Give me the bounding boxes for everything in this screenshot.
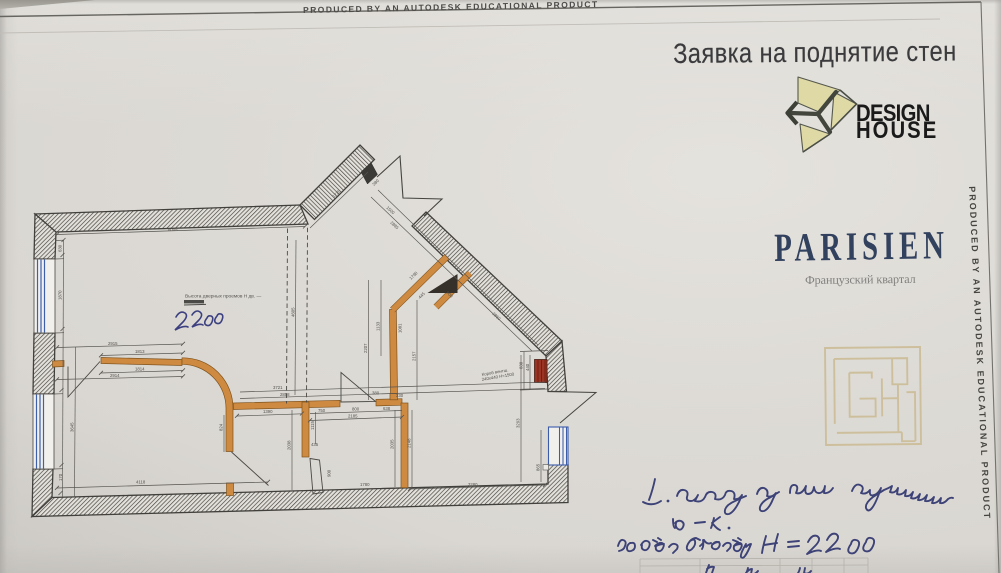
svg-text:1390: 1390 xyxy=(263,409,273,414)
svg-text:170: 170 xyxy=(58,473,63,481)
svg-text:1081: 1081 xyxy=(398,323,403,333)
svg-text:4605: 4605 xyxy=(291,307,296,317)
svg-text:3280: 3280 xyxy=(468,482,478,487)
svg-text:2915: 2915 xyxy=(108,341,118,346)
svg-text:2858: 2858 xyxy=(280,392,290,397)
svg-text:440: 440 xyxy=(525,363,530,371)
svg-text:2035: 2035 xyxy=(390,439,395,449)
svg-text:800: 800 xyxy=(352,407,360,412)
svg-text:445: 445 xyxy=(417,291,426,300)
svg-text:1115: 1115 xyxy=(310,420,315,430)
svg-text:3645: 3645 xyxy=(70,422,75,432)
svg-text:630: 630 xyxy=(58,244,63,252)
svg-text:1133: 1133 xyxy=(376,321,381,331)
svg-text:Высота дверных проемов Н дв. —: Высота дверных проемов Н дв. — xyxy=(185,294,262,300)
svg-text:1790: 1790 xyxy=(408,270,419,281)
svg-text:2185: 2185 xyxy=(348,413,358,418)
svg-text:865: 865 xyxy=(536,463,541,471)
svg-text:2885: 2885 xyxy=(389,220,400,231)
svg-text:3293: 3293 xyxy=(516,418,521,428)
svg-text:900: 900 xyxy=(327,469,332,477)
svg-text:824: 824 xyxy=(219,423,224,431)
svg-text:380: 380 xyxy=(372,391,380,396)
svg-text:750: 750 xyxy=(318,408,326,413)
svg-text:2914: 2914 xyxy=(110,373,120,378)
svg-text:230: 230 xyxy=(396,393,404,398)
svg-text:2207: 2207 xyxy=(363,343,368,353)
svg-text:2157: 2157 xyxy=(412,351,417,361)
svg-text:830: 830 xyxy=(519,361,524,369)
svg-text:3721: 3721 xyxy=(273,385,283,390)
svg-text:1870: 1870 xyxy=(58,290,63,300)
svg-text:638: 638 xyxy=(383,406,391,411)
svg-text:2038: 2038 xyxy=(287,440,292,450)
svg-text:2148: 2148 xyxy=(407,438,412,448)
svg-text:4118: 4118 xyxy=(136,480,146,485)
svg-text:1814: 1814 xyxy=(135,367,145,372)
svg-text:1813: 1813 xyxy=(135,349,145,354)
svg-text:8005: 8005 xyxy=(168,227,178,232)
svg-text:1500: 1500 xyxy=(385,205,396,216)
svg-text:1780: 1780 xyxy=(360,482,370,487)
svg-text:435: 435 xyxy=(311,442,319,447)
